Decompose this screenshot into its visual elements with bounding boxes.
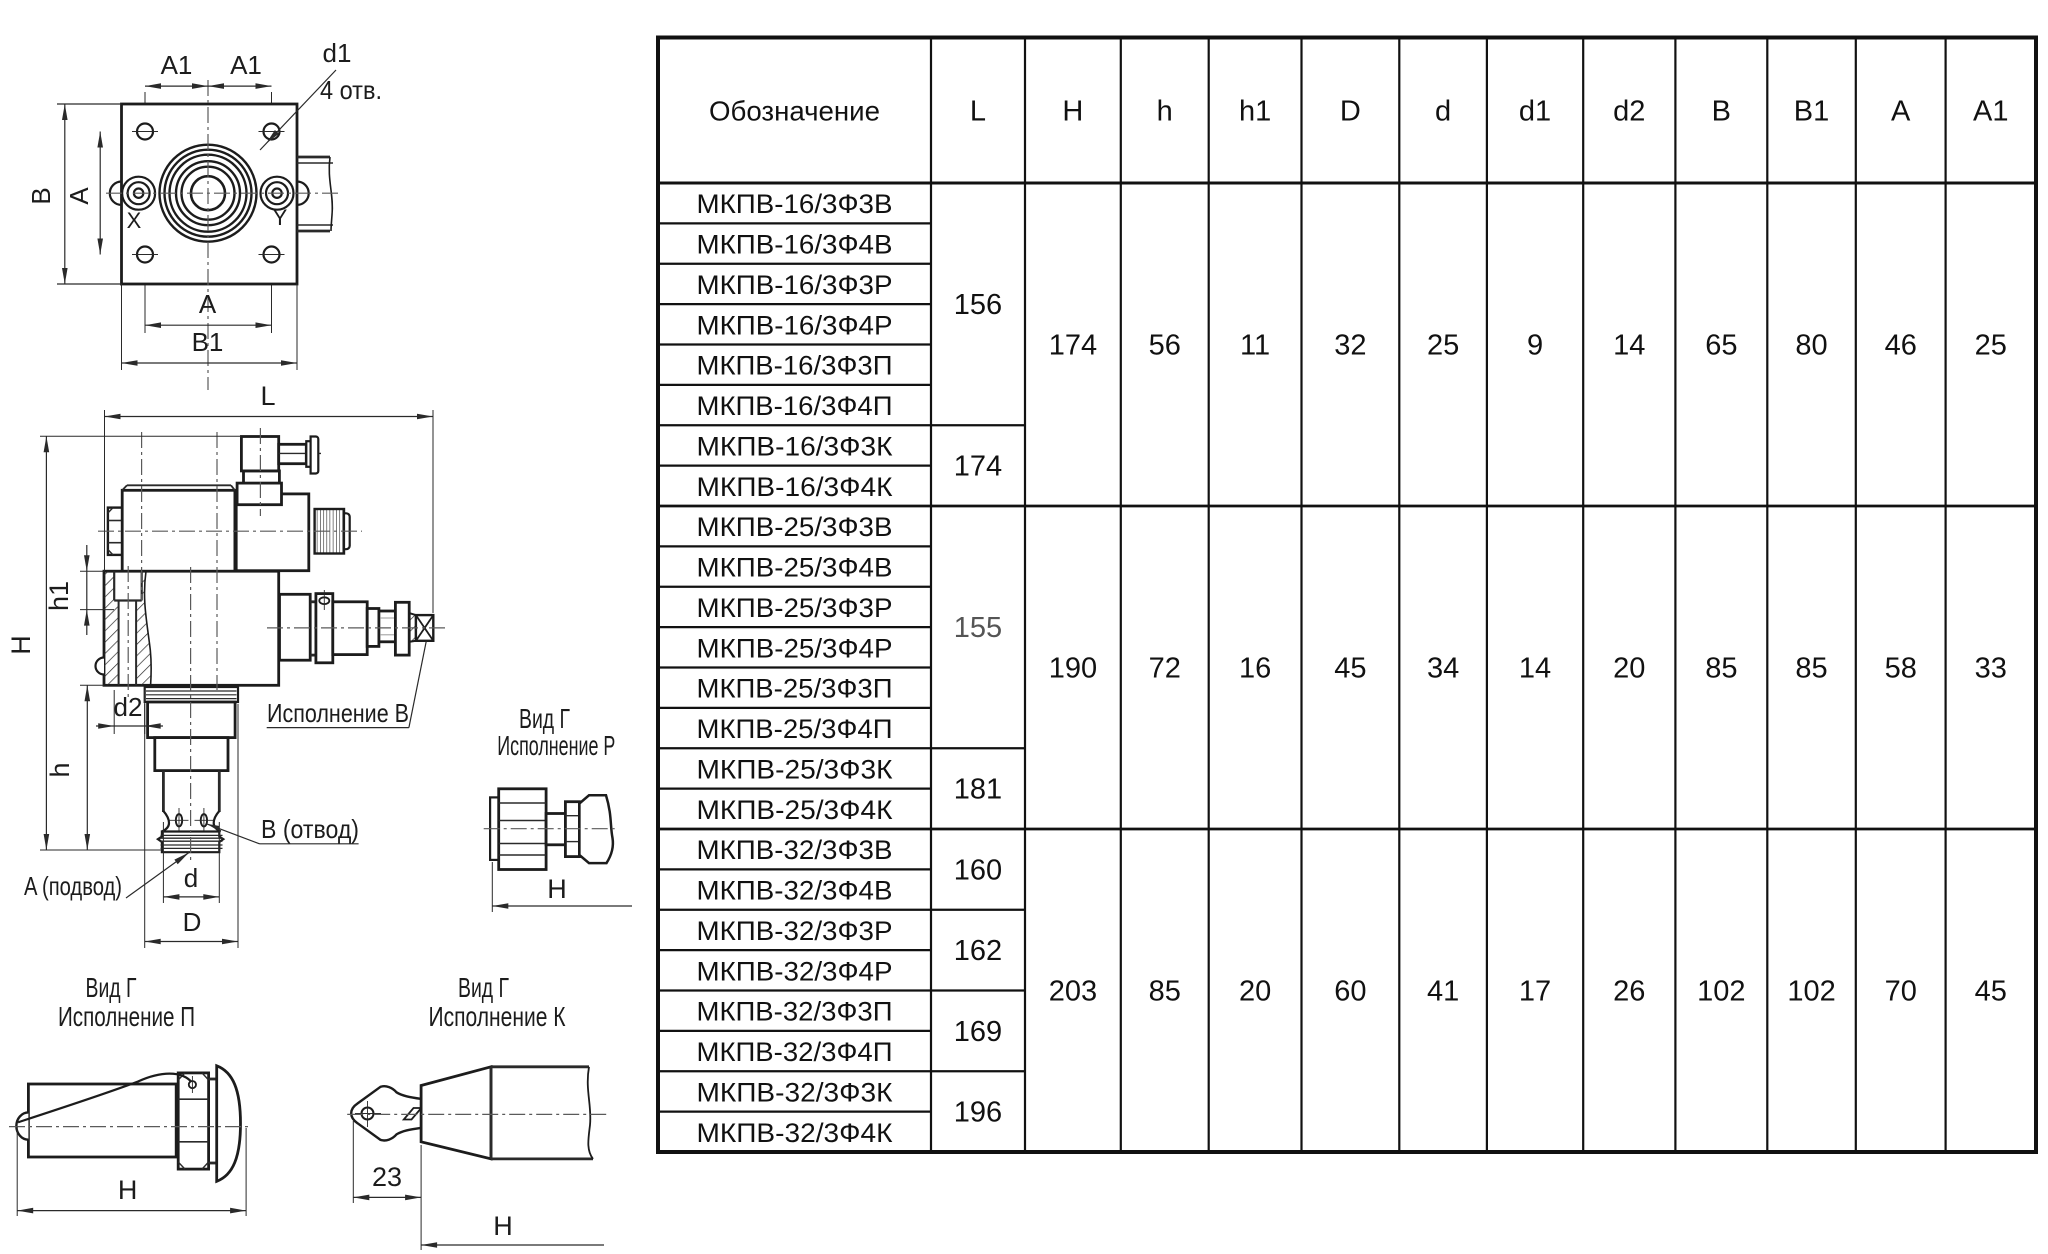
svg-text:Вид Г: Вид Г	[86, 972, 137, 1003]
svg-text:16: 16	[1239, 653, 1271, 685]
svg-text:L: L	[260, 381, 275, 411]
svg-text:МКПВ-32/3Ф4П: МКПВ-32/3Ф4П	[697, 1037, 893, 1067]
svg-text:26: 26	[1613, 976, 1645, 1008]
svg-text:B1: B1	[1794, 95, 1829, 127]
svg-text:h1: h1	[44, 581, 74, 611]
svg-text:Исполнение В: Исполнение В	[267, 698, 409, 728]
svg-text:МКПВ-25/3Ф3Р: МКПВ-25/3Ф3Р	[697, 593, 893, 623]
svg-text:d2: d2	[1613, 95, 1645, 127]
svg-text:d2: d2	[114, 692, 143, 722]
svg-text:102: 102	[1697, 976, 1745, 1008]
svg-text:h: h	[1157, 95, 1173, 127]
svg-text:A (подвод): A (подвод)	[24, 871, 122, 901]
svg-text:X: X	[127, 208, 142, 233]
svg-text:МКПВ-32/3Ф3Р: МКПВ-32/3Ф3Р	[697, 916, 893, 946]
svg-text:20: 20	[1613, 653, 1645, 685]
svg-text:d: d	[184, 863, 198, 893]
svg-text:МКПВ-25/3Ф4П: МКПВ-25/3Ф4П	[697, 714, 893, 744]
svg-text:58: 58	[1885, 653, 1917, 685]
svg-text:203: 203	[1049, 976, 1097, 1008]
svg-text:85: 85	[1795, 653, 1827, 685]
svg-text:A1: A1	[161, 50, 193, 80]
svg-text:МКПВ-25/3Ф4В: МКПВ-25/3Ф4В	[697, 553, 893, 583]
svg-text:46: 46	[1885, 330, 1917, 362]
svg-text:A: A	[199, 289, 217, 319]
svg-text:МКПВ-32/3Ф3К: МКПВ-32/3Ф3К	[697, 1077, 893, 1107]
svg-text:23: 23	[372, 1162, 402, 1192]
svg-text:МКПВ-16/3Ф4Р: МКПВ-16/3Ф4Р	[697, 310, 893, 340]
svg-text:85: 85	[1149, 976, 1181, 1008]
svg-text:25: 25	[1427, 330, 1459, 362]
svg-text:Вид Г: Вид Г	[458, 972, 509, 1003]
svg-text:155: 155	[954, 612, 1002, 644]
svg-text:МКПВ-32/3Ф4В: МКПВ-32/3Ф4В	[697, 876, 893, 906]
svg-text:МКПВ-25/3Ф3П: МКПВ-25/3Ф3П	[697, 674, 893, 704]
svg-text:МКПВ-16/3Ф3В: МКПВ-16/3Ф3В	[697, 189, 893, 219]
svg-text:14: 14	[1519, 653, 1551, 685]
svg-text:B1: B1	[192, 327, 224, 357]
svg-text:D: D	[183, 907, 202, 937]
svg-text:32: 32	[1334, 330, 1366, 362]
svg-text:4 отв.: 4 отв.	[320, 75, 382, 105]
svg-text:11: 11	[1240, 330, 1270, 362]
svg-text:196: 196	[954, 1097, 1002, 1129]
svg-text:d1: d1	[1519, 95, 1551, 127]
svg-text:169: 169	[954, 1016, 1002, 1048]
svg-text:D: D	[1340, 95, 1361, 127]
svg-text:34: 34	[1427, 653, 1459, 685]
svg-text:МКПВ-32/3Ф4К: МКПВ-32/3Ф4К	[697, 1118, 893, 1148]
svg-text:d1: d1	[323, 38, 352, 68]
svg-text:h1: h1	[1239, 95, 1271, 127]
svg-text:9: 9	[1527, 330, 1543, 362]
svg-text:85: 85	[1705, 653, 1737, 685]
svg-text:МКПВ-32/3Ф3В: МКПВ-32/3Ф3В	[697, 835, 893, 865]
svg-text:L: L	[970, 95, 986, 127]
svg-text:102: 102	[1787, 976, 1835, 1008]
svg-text:65: 65	[1705, 330, 1737, 362]
svg-text:174: 174	[954, 451, 1002, 483]
svg-text:B (отвод): B (отвод)	[261, 814, 359, 844]
svg-text:МКПВ-16/3Ф3Р: МКПВ-16/3Ф3Р	[697, 270, 893, 300]
svg-text:H: H	[547, 874, 567, 904]
svg-text:A: A	[1891, 95, 1911, 127]
svg-text:17: 17	[1519, 976, 1551, 1008]
svg-text:14: 14	[1613, 330, 1645, 362]
svg-text:60: 60	[1334, 976, 1366, 1008]
svg-text:H: H	[1062, 95, 1083, 127]
svg-text:A1: A1	[1973, 95, 2008, 127]
svg-text:МКПВ-25/3Ф3К: МКПВ-25/3Ф3К	[697, 754, 893, 784]
svg-text:МКПВ-25/3Ф4К: МКПВ-25/3Ф4К	[697, 795, 893, 825]
svg-text:Обозначение: Обозначение	[709, 95, 880, 126]
svg-text:МКПВ-16/3Ф4К: МКПВ-16/3Ф4К	[697, 472, 893, 502]
svg-text:33: 33	[1975, 653, 2007, 685]
svg-text:МКПВ-32/3Ф4Р: МКПВ-32/3Ф4Р	[697, 956, 893, 986]
svg-text:B: B	[1712, 95, 1731, 127]
svg-text:A: A	[64, 187, 94, 205]
svg-text:56: 56	[1149, 330, 1181, 362]
svg-text:МКПВ-25/3Ф4Р: МКПВ-25/3Ф4Р	[697, 633, 893, 663]
svg-text:45: 45	[1334, 653, 1366, 685]
svg-text:72: 72	[1149, 653, 1181, 685]
svg-text:A1: A1	[230, 50, 262, 80]
svg-text:160: 160	[954, 854, 1002, 886]
svg-text:МКПВ-16/3Ф4П: МКПВ-16/3Ф4П	[697, 391, 893, 421]
svg-text:d: d	[1435, 95, 1451, 127]
svg-text:МКПВ-25/3Ф3В: МКПВ-25/3Ф3В	[697, 512, 893, 542]
svg-text:41: 41	[1427, 976, 1459, 1008]
svg-text:70: 70	[1885, 976, 1917, 1008]
svg-text:162: 162	[954, 935, 1002, 967]
svg-text:156: 156	[954, 289, 1002, 321]
svg-text:190: 190	[1049, 653, 1097, 685]
svg-text:20: 20	[1239, 976, 1271, 1008]
svg-text:МКПВ-16/3Ф3К: МКПВ-16/3Ф3К	[697, 431, 893, 461]
svg-text:H: H	[6, 635, 36, 655]
svg-text:174: 174	[1049, 330, 1097, 362]
svg-text:45: 45	[1975, 976, 2007, 1008]
svg-text:МКПВ-16/3Ф3П: МКПВ-16/3Ф3П	[697, 351, 893, 381]
svg-text:H: H	[118, 1175, 138, 1205]
svg-text:h: h	[45, 762, 75, 777]
svg-text:80: 80	[1795, 330, 1827, 362]
svg-text:Исполнение П: Исполнение П	[58, 1001, 195, 1032]
svg-text:МКПВ-32/3Ф3П: МКПВ-32/3Ф3П	[697, 997, 893, 1027]
svg-text:B: B	[26, 187, 56, 204]
svg-text:Y: Y	[273, 205, 288, 230]
svg-text:МКПВ-16/3Ф4В: МКПВ-16/3Ф4В	[697, 230, 893, 260]
svg-text:181: 181	[954, 774, 1002, 806]
svg-text:Исполнение Р: Исполнение Р	[497, 730, 615, 761]
svg-text:H: H	[493, 1211, 513, 1241]
svg-text:25: 25	[1975, 330, 2007, 362]
svg-text:Исполнение К: Исполнение К	[429, 1001, 567, 1032]
